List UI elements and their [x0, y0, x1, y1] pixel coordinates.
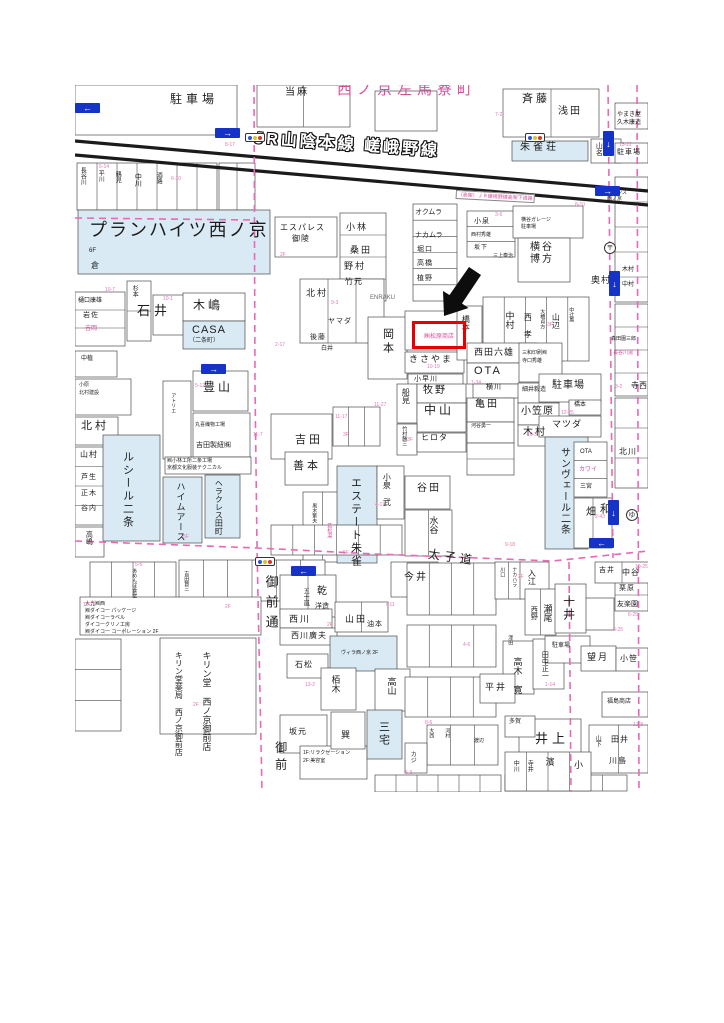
map-label: 博方 [530, 255, 554, 266]
map-label: 高嶋 [85, 531, 92, 545]
map-label: 西ノ京 [607, 197, 622, 202]
highlight-label: ㈱松原商店 [424, 331, 454, 340]
map-label: ナカムラ [415, 232, 443, 239]
house-number: 10-7 [105, 288, 115, 293]
one-way-arrow-sign: → [595, 186, 620, 196]
map-label: JR山陰本線 嵯峨野線 [254, 131, 441, 161]
map-label: カジ [409, 751, 415, 763]
house-number: 6-3 [405, 771, 412, 776]
map-label: 岡本 [381, 328, 393, 356]
map-label: 久木康造 [617, 120, 641, 126]
map-label: 北川 [619, 448, 637, 456]
one-way-arrow-sign: ← [75, 103, 100, 113]
map-label: エスパレス [280, 224, 325, 232]
map-label: エステート朱雀 [349, 477, 361, 568]
one-way-arrow-sign: ← [589, 538, 614, 548]
map-label: サンヴェール二条 [558, 447, 569, 535]
house-number: 5-6 [135, 563, 142, 568]
map-label: 山名 [595, 142, 602, 156]
house-number: 7-11 [385, 603, 395, 608]
map-label: 小泉 [474, 218, 490, 225]
map-label: 豊山 [203, 381, 233, 394]
map-label: 吉田製紐㈱ [196, 442, 231, 449]
map-label: 吉田賢三 [183, 571, 188, 591]
map-label: 浅田 [558, 107, 582, 118]
house-number: 9-18 [505, 543, 515, 548]
map-label: 正木 [81, 490, 97, 497]
one-way-arrow-sign: ← [291, 566, 316, 576]
house-number: 8-10 [575, 203, 585, 208]
map-label: 高橋 [417, 260, 433, 267]
map-label: 河谷勇一 [471, 424, 491, 429]
map-label: 西川廣夫 [291, 632, 327, 640]
map-label: 細井毅造 [522, 387, 546, 393]
house-number: 4-17 [375, 503, 385, 508]
map-label: 十井 [562, 595, 575, 621]
map-label: 奥村 [591, 276, 611, 285]
map-label: ヘラクレス田町 [214, 479, 222, 535]
map-label: 栢木 [330, 675, 339, 693]
map-label: キリン堂 西ノ京御前店 [201, 651, 210, 751]
map-label: 横谷ガレージ [521, 218, 551, 223]
house-number: 11-7 [253, 433, 263, 438]
house-number: 6-25 [628, 613, 638, 618]
house-number: 2-43 [595, 515, 605, 520]
map-label: 川島 [609, 757, 627, 765]
map-label: 西 孝 [523, 313, 531, 338]
map-canvas[interactable]: 駐車場当麻西ノ京左馬寮町斉藤浅田やまき屋久木康造駐車場朱雀荘山名JR山陰本線 嵯… [75, 85, 648, 792]
house-number: 1-34 [471, 381, 481, 386]
map-label: 山田 [345, 615, 367, 624]
map-label: 栗原 [619, 585, 635, 592]
house-number: 2F [327, 623, 333, 628]
map-label: ㈱小林工所二条工場 [167, 459, 212, 464]
map-label: 小笹 [620, 655, 638, 663]
map-label: オクムラ [415, 209, 442, 216]
house-number: 6-14 [99, 165, 109, 170]
map-label: 西村秀雄 [471, 233, 491, 238]
map-label: 西田六雄 [474, 348, 514, 357]
map-label: 堀口 [417, 246, 433, 253]
map-label: OTA [474, 366, 502, 378]
map-annotations: 駐車場当麻西ノ京左馬寮町斉藤浅田やまき屋久木康造駐車場朱雀荘山名JR山陰本線 嵯… [75, 85, 648, 792]
map-label: 三宮 [580, 484, 592, 490]
map-label: 木村 [622, 267, 634, 273]
map-label: 三和印刷㈱ [522, 351, 547, 356]
map-label: 友楽園 [617, 601, 638, 608]
map-label: 西ノ京左馬寮町 [337, 85, 477, 98]
map-label: 小 [574, 761, 583, 770]
map-label: カワイ [579, 467, 597, 473]
map-label: 亀田 [475, 400, 499, 411]
traffic-light-icon [245, 133, 265, 142]
map-label: 白井 [321, 346, 333, 352]
map-label: 桑田 [350, 246, 372, 255]
map-label: 6F [89, 248, 96, 254]
house-number: 11-27 [374, 403, 386, 408]
map-label: ナカハラ [511, 567, 516, 587]
house-number: 3F [547, 323, 553, 328]
map-label: 斉藤 [522, 94, 550, 106]
map-label: 2F:美容室 [303, 759, 325, 764]
house-number: 2F [225, 605, 231, 610]
map-label: 小原 [79, 383, 89, 388]
map-label: 坂元 [289, 728, 307, 736]
map-label: 野村 [344, 262, 366, 271]
house-number: 8-17 [225, 143, 235, 148]
map-label: 小林 [346, 223, 368, 232]
map-label: 中村 [622, 282, 634, 288]
map-label: ㈱ダイコー パッケージ [85, 609, 136, 614]
map-label: 長谷川 [79, 167, 85, 185]
railway-note: （高架）ＪＲ嵯峨野線高架下道路 [456, 190, 535, 203]
map-label: ヴィラ西ノ京 2F [341, 651, 378, 656]
map-label: 北村 [81, 421, 109, 433]
map-label: OTA [580, 449, 592, 455]
map-label: 乾 [317, 587, 327, 598]
house-number: 3F [343, 433, 349, 438]
house-number: 10-1 [163, 297, 173, 302]
map-label: 当麻 [285, 88, 309, 99]
one-way-arrow-sign: ↓ [603, 131, 614, 156]
map-label: 橋本 [574, 402, 586, 408]
map-label: ダイコークリノ工房 [85, 623, 130, 628]
map-label: 善本 [293, 461, 321, 473]
house-number: 13-2 [305, 683, 315, 688]
map-label: 三上泰治 [493, 254, 513, 259]
page: 駐車場当麻西ノ京左馬寮町斉藤浅田やまき屋久木康造駐車場朱雀荘山名JR山陰本線 嵯… [0, 0, 724, 1023]
map-label: 瀬尾 [542, 604, 551, 622]
map-label: 寺西 [631, 382, 647, 390]
map-label: 酒路 [155, 172, 161, 184]
house-number: 12-8 [633, 723, 643, 728]
map-label: やまき屋 [617, 112, 641, 118]
map-label: 今井 [404, 573, 428, 584]
map-label: 多賀 [509, 719, 521, 725]
map-label: 鶴見 [114, 171, 120, 183]
map-label: 望月 [587, 653, 609, 662]
map-label: 船見 [401, 388, 409, 404]
post-office-icon: 〒 [604, 242, 616, 254]
map-label: 高山 [386, 677, 395, 695]
map-label: 横川 [486, 384, 502, 391]
map-label: 小早川 [414, 376, 438, 383]
house-number: 15-22 [619, 143, 632, 148]
house-number: 11-17 [335, 415, 347, 420]
map-label: 中川 [512, 760, 518, 772]
map-label: 駐車場 [617, 149, 641, 156]
one-way-arrow-sign: ↓ [608, 500, 619, 525]
map-label: 中川 [134, 173, 141, 187]
house-number: 3-6 [495, 213, 502, 218]
house-number: 12-25 [561, 411, 574, 416]
map-label: 若松湯 [326, 523, 331, 538]
house-number: 5-12 [195, 384, 205, 389]
map-label: ヒロタ [421, 434, 448, 442]
house-number: 2F [518, 575, 524, 580]
map-label: 1F:リラクゼーション [303, 751, 350, 756]
map-label: 山下 [594, 735, 600, 747]
map-label: プランハイツ西ノ京 [89, 221, 269, 240]
map-label: 丸喜織物工場 [195, 423, 225, 428]
public-bath-icon: ゆ [626, 509, 638, 521]
map-label: ルシール二条 [121, 451, 133, 529]
house-number: 7-2 [495, 113, 502, 118]
map-label: 小笠原 [521, 407, 554, 418]
house-number: 10-3 [527, 433, 537, 438]
map-label: 寺口秀雄 [522, 359, 542, 364]
map-label: 濱 [544, 757, 553, 766]
house-number: 9-3 [331, 301, 338, 306]
map-label: 平井 [485, 683, 507, 692]
map-label: 駐車場 [552, 643, 570, 649]
map-label: 御前 [274, 741, 287, 775]
map-label: 樋口康雄 [78, 298, 102, 304]
map-label: 駐車場 [170, 93, 218, 106]
map-label: 三宅 [377, 721, 389, 747]
map-label: 竹元 [345, 278, 363, 286]
map-label: 大橋貞方 [539, 309, 544, 329]
map-label: ENRAKU [370, 295, 395, 301]
map-label: 石松 [295, 661, 313, 669]
map-label: ㈱ダイコー コーポレーション 2F [85, 630, 159, 635]
map-label: 巽 [341, 731, 350, 740]
map-label: 川口 [499, 567, 504, 577]
house-number: 3-2 [615, 385, 622, 390]
map-label: 田中正一 [541, 651, 548, 679]
map-label: 杉本 [131, 285, 137, 297]
map-label: 中谷 [622, 569, 640, 577]
map-label: 御陵 [292, 235, 310, 243]
map-label: 中村 [504, 311, 513, 329]
house-number: 5F [343, 551, 349, 556]
map-label: CASA [192, 325, 226, 337]
house-number: 4-6 [463, 643, 470, 648]
map-label: 北村建設 [79, 391, 99, 396]
map-label: 大西 [428, 728, 433, 738]
map-label: あめんぼ食堂 [131, 568, 136, 598]
map-label: 西野 [530, 606, 537, 620]
house-number: 3F [407, 438, 413, 443]
map-label: （二条町） [189, 338, 219, 344]
house-number: 8-6 [425, 721, 432, 726]
one-way-arrow-sign: → [215, 128, 240, 138]
traffic-light-icon [525, 133, 545, 142]
house-number: 2F [280, 253, 286, 258]
map-label: 御前通 [264, 575, 278, 635]
traffic-light-icon [255, 557, 275, 566]
map-label: 水谷 [428, 516, 437, 534]
map-label: 中辻萬 [568, 307, 573, 322]
map-label: 油本 [367, 621, 383, 628]
map-label: 朱雀荘 [520, 143, 559, 154]
map-label: 黒木繁夫 [311, 503, 316, 523]
map-label: 坂下 [474, 245, 488, 251]
map-label: アトリエ [170, 393, 175, 413]
map-label: 澤田 [507, 635, 512, 645]
map-label: 洋造 [315, 603, 329, 610]
map-label: 横谷 [530, 243, 554, 254]
map-label: マツダ [552, 420, 582, 429]
map-label: 渡辺 [474, 739, 484, 744]
one-way-arrow-sign: ↓ [609, 271, 620, 296]
map-label: 太子道 [427, 548, 476, 567]
house-number: 10-25 [635, 565, 648, 570]
map-label: 畑 [583, 506, 594, 516]
map-label: 後藤 [310, 334, 326, 341]
map-label: 森田園三郎 [611, 337, 636, 342]
map-label: 中植 [81, 356, 93, 362]
map-label: 河村 [444, 728, 449, 738]
map-label: 寺井 [526, 760, 532, 772]
map-label: 竹村勝三 [401, 426, 406, 446]
map-label: 谷内 [81, 505, 97, 512]
map-label: 岩佐 [83, 312, 99, 319]
map-label: 平川 [97, 170, 103, 182]
map-label: 五十嵐 [302, 588, 308, 606]
one-way-arrow-sign: → [201, 364, 226, 374]
map-label: 駐車場 [521, 225, 536, 230]
map-label: 吉井 [599, 567, 615, 574]
map-label: 谷田 [417, 484, 441, 495]
house-number: 10-11 [83, 603, 95, 608]
map-label: 木嶋 [193, 299, 223, 312]
map-label: 植野 [417, 275, 433, 282]
house-number: 2F [193, 703, 199, 708]
house-number: 10-19 [427, 365, 440, 370]
map-label: 倉 [91, 262, 99, 270]
map-label: 高木 寛 [512, 657, 521, 694]
map-label: ハイムアース [175, 482, 184, 542]
map-label: ヤマダ [328, 318, 352, 325]
map-label: 石井 [137, 304, 171, 318]
map-label: 入江 [527, 569, 535, 585]
map-label: 芦生 [81, 474, 97, 481]
map-label: キリン堂薬局 西ノ京御前店 [174, 651, 182, 756]
map-label: 京都文化服装テクニカル [167, 466, 222, 471]
map-label: 井上 [535, 732, 569, 746]
house-number: 6-10 [171, 177, 181, 182]
house-number: 2-17 [275, 343, 285, 348]
map-label: 駐車場 [552, 381, 585, 392]
map-label: 牧野 [423, 386, 447, 397]
map-label: ㈱ダイコーラベル [85, 616, 125, 621]
map-label: 田井 [611, 736, 629, 744]
map-label: 吉田 [295, 435, 323, 447]
map-label: 中山 [424, 404, 454, 417]
house-number: 1-14 [545, 683, 555, 688]
map-label: 長谷川湯 [613, 351, 633, 356]
map-label: 吉岡 [85, 326, 97, 332]
highlight-box[interactable]: ㈱松原商店 [412, 321, 466, 349]
map-label: 西川 [289, 615, 311, 624]
map-label: 福島商店 [607, 699, 631, 705]
map-label: 山村 [80, 451, 98, 459]
house-number: 8-25 [613, 628, 623, 633]
house-number: 5F [183, 535, 189, 540]
map-label: 北村 [306, 289, 328, 298]
